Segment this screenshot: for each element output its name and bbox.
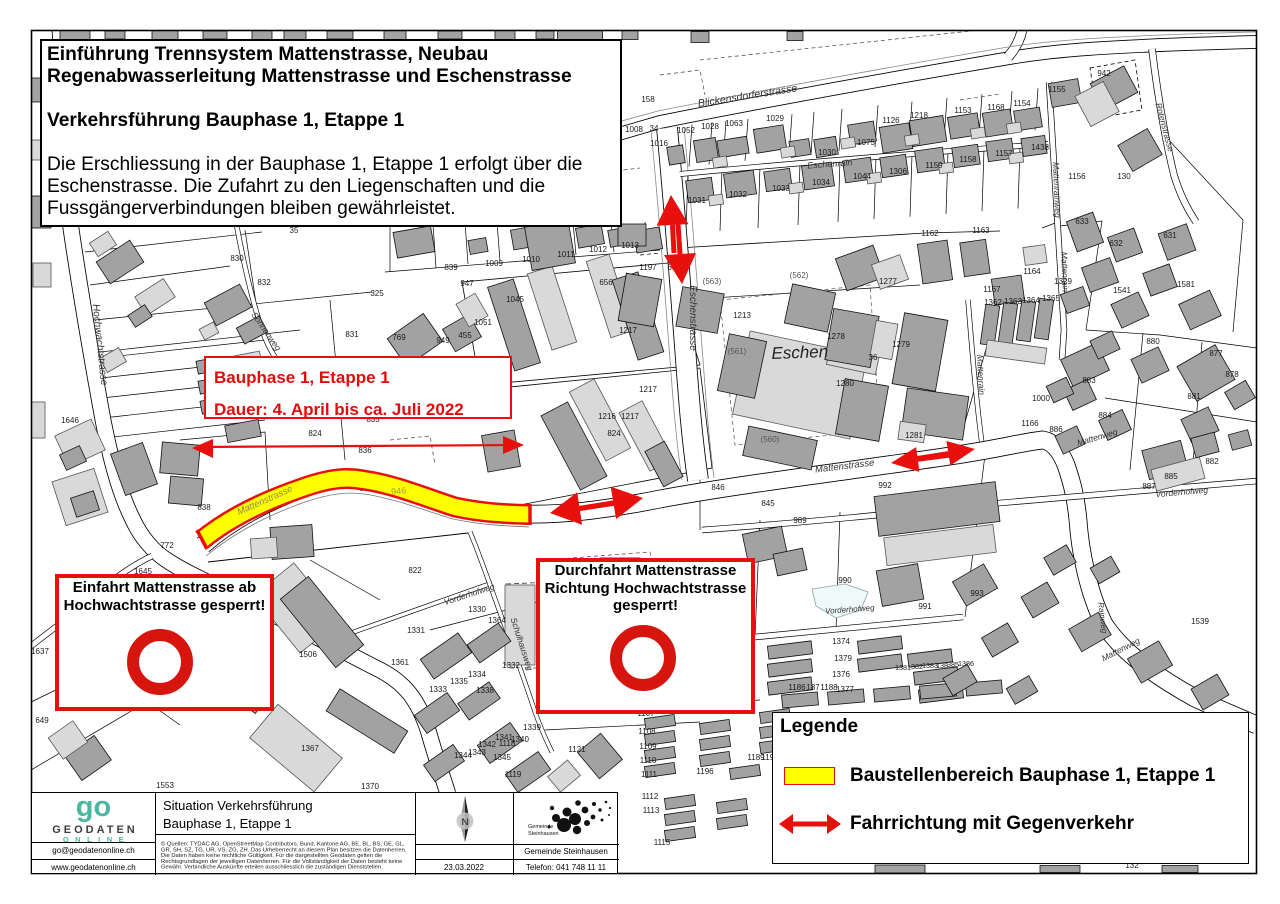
svg-text:1163: 1163: [972, 226, 990, 235]
svg-text:1011: 1011: [557, 250, 575, 259]
svg-text:1031: 1031: [688, 196, 706, 205]
svg-text:1113: 1113: [643, 806, 660, 815]
svg-text:633: 633: [1075, 217, 1089, 226]
svg-text:993: 993: [970, 589, 984, 598]
svg-text:656: 656: [599, 278, 613, 287]
svg-text:455: 455: [458, 331, 472, 340]
svg-text:1331: 1331: [407, 626, 425, 635]
svg-text:1364: 1364: [488, 616, 506, 625]
svg-text:836: 836: [358, 446, 372, 455]
svg-text:158: 158: [641, 95, 655, 104]
svg-text:883: 883: [1082, 376, 1096, 385]
svg-text:(563): (563): [703, 277, 722, 286]
svg-text:1118: 1118: [499, 739, 516, 748]
svg-text:831: 831: [345, 330, 359, 339]
svg-text:34: 34: [650, 124, 659, 133]
svg-text:1306: 1306: [889, 167, 907, 176]
svg-text:1110: 1110: [640, 756, 657, 765]
svg-text:882: 882: [1205, 457, 1219, 466]
svg-text:1363: 1363: [1004, 297, 1022, 306]
svg-text:880: 880: [1146, 337, 1160, 346]
svg-text:1013: 1013: [621, 241, 639, 250]
svg-text:1506: 1506: [299, 650, 317, 659]
svg-text:881: 881: [1187, 392, 1201, 401]
svg-text:Eschenstrasse: Eschenstrasse: [687, 285, 698, 351]
svg-text:877: 877: [1209, 349, 1223, 358]
svg-text:1367: 1367: [301, 744, 319, 753]
svg-text:1157: 1157: [995, 149, 1013, 158]
svg-text:632: 632: [1109, 239, 1123, 248]
svg-text:130: 130: [1117, 172, 1131, 181]
svg-text:1213: 1213: [733, 311, 751, 320]
svg-text:1029: 1029: [766, 114, 784, 123]
svg-text:887: 887: [1142, 482, 1156, 491]
svg-text:1361: 1361: [391, 658, 409, 667]
svg-text:1332: 1332: [502, 661, 520, 670]
svg-text:1379: 1379: [834, 654, 852, 663]
svg-text:1218: 1218: [910, 111, 928, 120]
svg-text:846: 846: [711, 483, 725, 492]
svg-text:822: 822: [408, 566, 422, 575]
svg-text:838: 838: [197, 503, 211, 512]
svg-text:824: 824: [607, 429, 621, 438]
svg-text:1281: 1281: [905, 431, 923, 440]
svg-text:942: 942: [1097, 69, 1111, 78]
svg-text:Eschen: Eschen: [771, 342, 828, 363]
svg-text:1010: 1010: [522, 255, 540, 264]
svg-text:1334: 1334: [468, 670, 486, 679]
svg-text:1335: 1335: [450, 677, 468, 686]
svg-text:631: 631: [1163, 231, 1177, 240]
svg-text:1217: 1217: [639, 385, 657, 394]
svg-text:1188: 1188: [820, 683, 838, 692]
svg-text:990: 990: [838, 576, 852, 585]
svg-text:1374: 1374: [832, 637, 850, 646]
svg-text:1156: 1156: [1068, 172, 1086, 181]
svg-text:1168: 1168: [987, 103, 1005, 112]
svg-text:1051: 1051: [474, 318, 492, 327]
svg-text:1637: 1637: [31, 647, 49, 656]
svg-text:845: 845: [761, 499, 775, 508]
svg-text:947: 947: [460, 279, 474, 288]
svg-text:(562): (562): [790, 271, 809, 280]
svg-text:1167: 1167: [983, 285, 1001, 294]
svg-text:1216: 1216: [598, 412, 616, 421]
svg-text:Steinhausen: Steinhausen: [528, 831, 559, 837]
svg-text:1109: 1109: [639, 742, 657, 751]
svg-text:1052: 1052: [677, 126, 695, 135]
svg-text:1121: 1121: [568, 745, 586, 754]
svg-text:1111: 1111: [641, 770, 658, 779]
svg-text:1119: 1119: [505, 770, 522, 779]
svg-text:1159: 1159: [925, 161, 943, 170]
svg-text:1063: 1063: [725, 119, 743, 128]
svg-text:187: 187: [806, 683, 820, 692]
svg-text:Mattenrainweg: Mattenrainweg: [1051, 162, 1063, 218]
svg-text:1186: 1186: [788, 683, 806, 692]
svg-text:1028: 1028: [701, 122, 719, 131]
svg-text:946: 946: [391, 485, 407, 497]
svg-text:1376: 1376: [832, 670, 850, 679]
svg-text:Vorderhofweg: Vorderhofweg: [443, 581, 496, 607]
svg-text:1045: 1045: [506, 295, 524, 304]
svg-text:878: 878: [1225, 370, 1239, 379]
svg-text:1278: 1278: [827, 332, 845, 341]
svg-text:830: 830: [230, 254, 244, 263]
svg-text:1034: 1034: [812, 178, 830, 187]
svg-text:1008: 1008: [625, 125, 643, 134]
svg-text:991: 991: [918, 602, 932, 611]
svg-text:1075: 1075: [857, 138, 875, 147]
svg-text:885: 885: [1164, 472, 1178, 481]
svg-text:Mattenweg: Mattenweg: [1076, 427, 1119, 448]
svg-text:1365: 1365: [1042, 294, 1060, 303]
svg-text:1362: 1362: [984, 298, 1002, 307]
svg-text:1033: 1033: [772, 184, 790, 193]
svg-text:35: 35: [290, 226, 299, 235]
svg-text:1162: 1162: [921, 229, 939, 238]
svg-text:1197: 1197: [639, 263, 657, 272]
svg-text:1338: 1338: [476, 686, 494, 695]
svg-text:1277: 1277: [879, 277, 897, 286]
svg-text:(561): (561): [728, 347, 747, 356]
svg-text:1217: 1217: [621, 412, 639, 421]
svg-text:832: 832: [257, 278, 271, 287]
svg-text:1196: 1196: [696, 767, 714, 776]
svg-text:1370: 1370: [361, 782, 379, 791]
svg-text:1364: 1364: [1022, 296, 1040, 305]
svg-text:1126: 1126: [882, 116, 900, 125]
svg-text:1345: 1345: [493, 753, 511, 762]
svg-text:325: 325: [370, 289, 384, 298]
svg-text:1032: 1032: [729, 190, 747, 199]
svg-text:1016: 1016: [650, 139, 668, 148]
svg-text:1553: 1553: [156, 781, 174, 790]
svg-text:949: 949: [436, 336, 450, 345]
svg-text:1646: 1646: [61, 416, 79, 425]
svg-text:1339: 1339: [523, 723, 541, 732]
svg-text:886: 886: [1049, 425, 1063, 434]
svg-text:1155: 1155: [1048, 85, 1066, 94]
svg-text:1108: 1108: [638, 727, 656, 736]
svg-text:989: 989: [793, 516, 807, 525]
svg-text:Mattenrain: Mattenrain: [975, 355, 987, 396]
svg-text:36: 36: [869, 353, 878, 362]
svg-text:839: 839: [444, 263, 458, 272]
svg-text:1009: 1009: [485, 259, 503, 268]
svg-text:Gemeinde: Gemeinde: [528, 824, 553, 830]
svg-text:1012: 1012: [589, 245, 607, 254]
svg-text:769: 769: [392, 333, 406, 342]
svg-text:992: 992: [878, 481, 892, 490]
svg-text:1386: 1386: [958, 659, 974, 668]
svg-text:1164: 1164: [1023, 267, 1041, 276]
svg-text:1280: 1280: [836, 379, 854, 388]
svg-text:1166: 1166: [1021, 419, 1039, 428]
svg-text:1115: 1115: [654, 838, 671, 847]
svg-text:1000: 1000: [1032, 394, 1050, 403]
svg-text:1279: 1279: [892, 340, 910, 349]
svg-text:824: 824: [308, 429, 322, 438]
svg-text:1330: 1330: [468, 605, 486, 614]
svg-text:1581: 1581: [1177, 280, 1195, 289]
svg-text:1329: 1329: [1054, 277, 1072, 286]
svg-text:1158: 1158: [959, 155, 977, 164]
svg-text:1539: 1539: [1191, 617, 1209, 626]
svg-text:(560): (560): [761, 435, 780, 444]
svg-text:649: 649: [35, 716, 49, 725]
svg-text:N: N: [462, 817, 469, 828]
svg-text:1377: 1377: [836, 685, 854, 694]
svg-text:1044: 1044: [853, 172, 871, 181]
svg-text:1153: 1153: [954, 106, 972, 115]
svg-text:1154: 1154: [1013, 99, 1031, 108]
svg-text:Mattenrain: Mattenrain: [1059, 252, 1070, 293]
svg-text:772: 772: [160, 541, 174, 550]
svg-text:1112: 1112: [642, 792, 659, 801]
svg-text:1438: 1438: [1031, 143, 1049, 152]
svg-text:884: 884: [1098, 411, 1112, 420]
svg-text:1541: 1541: [1113, 286, 1131, 295]
svg-text:1217: 1217: [619, 326, 637, 335]
svg-text:1333: 1333: [429, 685, 447, 694]
svg-text:1344: 1344: [454, 751, 472, 760]
svg-text:1381: 1381: [895, 663, 911, 672]
svg-text:1030: 1030: [818, 148, 836, 157]
